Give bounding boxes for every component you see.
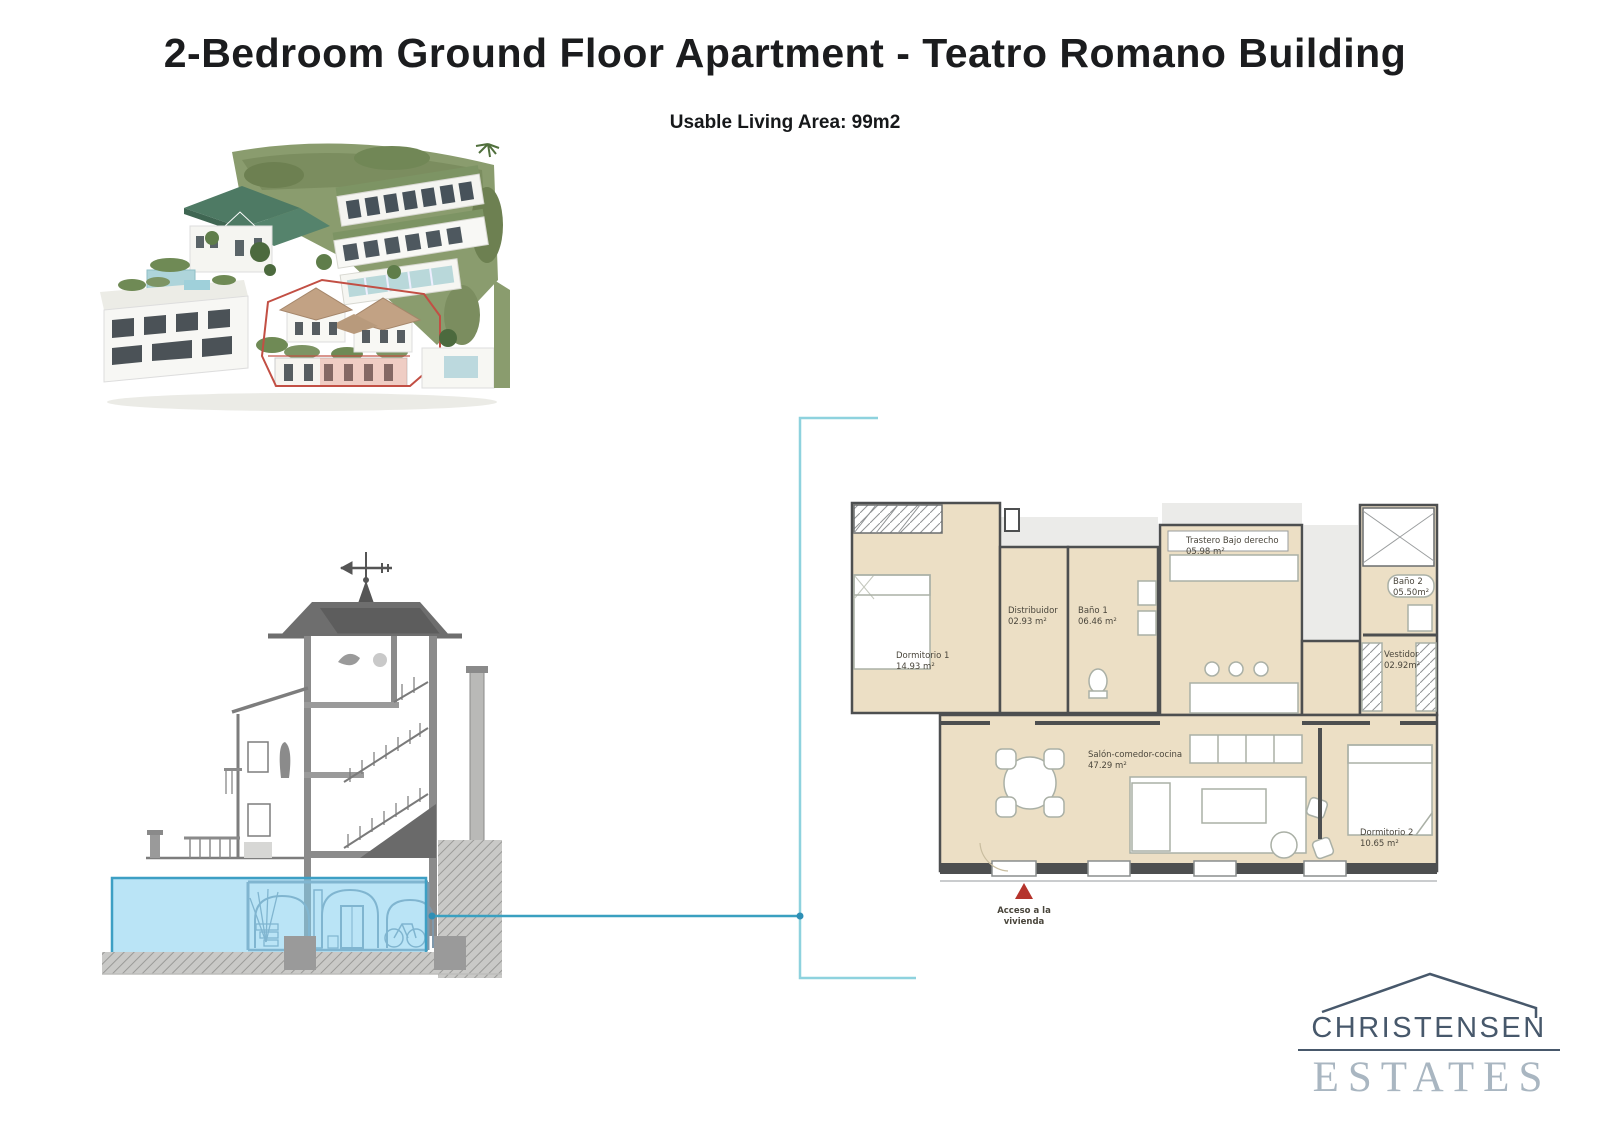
room-label-bano-2: Baño 2	[1393, 577, 1423, 587]
floor-plan-illustration: Dormitorio 1 14.93 m² Distribuidor 02.93…	[840, 483, 1440, 943]
room-area-dormitorio-2: 10.65 m²	[1360, 839, 1399, 849]
weathervane-icon	[341, 552, 392, 602]
room-label-bano-1: Baño 1	[1078, 606, 1108, 616]
logo-tagline: ESTATES	[1302, 1053, 1562, 1102]
logo-roof-icon	[1296, 966, 1562, 1018]
access-label-line1: Acceso a la	[997, 906, 1051, 916]
room-label-salon: Salón-comedor-cocina	[1088, 749, 1182, 760]
ground-floor-highlight	[112, 878, 426, 954]
shower-bano2	[1363, 508, 1434, 566]
room-label-dormitorio-1: Dormitorio 1	[896, 651, 949, 661]
room-area-vestidor: 02.92m²	[1384, 661, 1420, 671]
logo-rule	[1298, 1049, 1560, 1051]
aerial-render-svg	[92, 130, 512, 420]
logo-name: CHRISTENSEN	[1296, 1012, 1562, 1045]
room-label-dormitorio-2: Dormitorio 2	[1360, 828, 1413, 838]
room-area-dormitorio-1: 14.93 m²	[896, 662, 935, 672]
aerial-render-illustration	[92, 130, 512, 420]
floor-plan-svg: Dormitorio 1 14.93 m² Distribuidor 02.93…	[840, 483, 1440, 943]
entry-access-triangle-icon	[1015, 883, 1033, 899]
brochure-page: 2-Bedroom Ground Floor Apartment - Teatr…	[0, 0, 1600, 1131]
terrace-pergola	[147, 830, 240, 858]
left-annex	[146, 688, 308, 858]
access-label-line2: vivienda	[1004, 917, 1045, 927]
brand-logo: CHRISTENSEN ESTATES	[1296, 966, 1562, 1106]
room-label-vestidor: Vestidor	[1384, 650, 1419, 660]
room-area-bano-1: 06.46 m²	[1078, 617, 1117, 627]
room-area-salon: 47.29 m²	[1088, 761, 1127, 771]
room-label-distribuidor: Distribuidor	[1008, 606, 1058, 616]
room-area-trastero: 05.98 m²	[1186, 547, 1225, 557]
duct-box	[1005, 509, 1019, 531]
room-area-distribuidor: 02.93 m²	[1008, 617, 1047, 627]
room-area-bano-2: 05.50m²	[1393, 588, 1429, 598]
page-title: 2-Bedroom Ground Floor Apartment - Teatr…	[0, 30, 1570, 77]
room-label-trastero: Trastero Bajo derecho	[1185, 536, 1279, 546]
level-reference-line	[429, 913, 804, 920]
wardrobe-dorm1	[854, 505, 942, 533]
foreground-apartment-block	[100, 275, 248, 382]
